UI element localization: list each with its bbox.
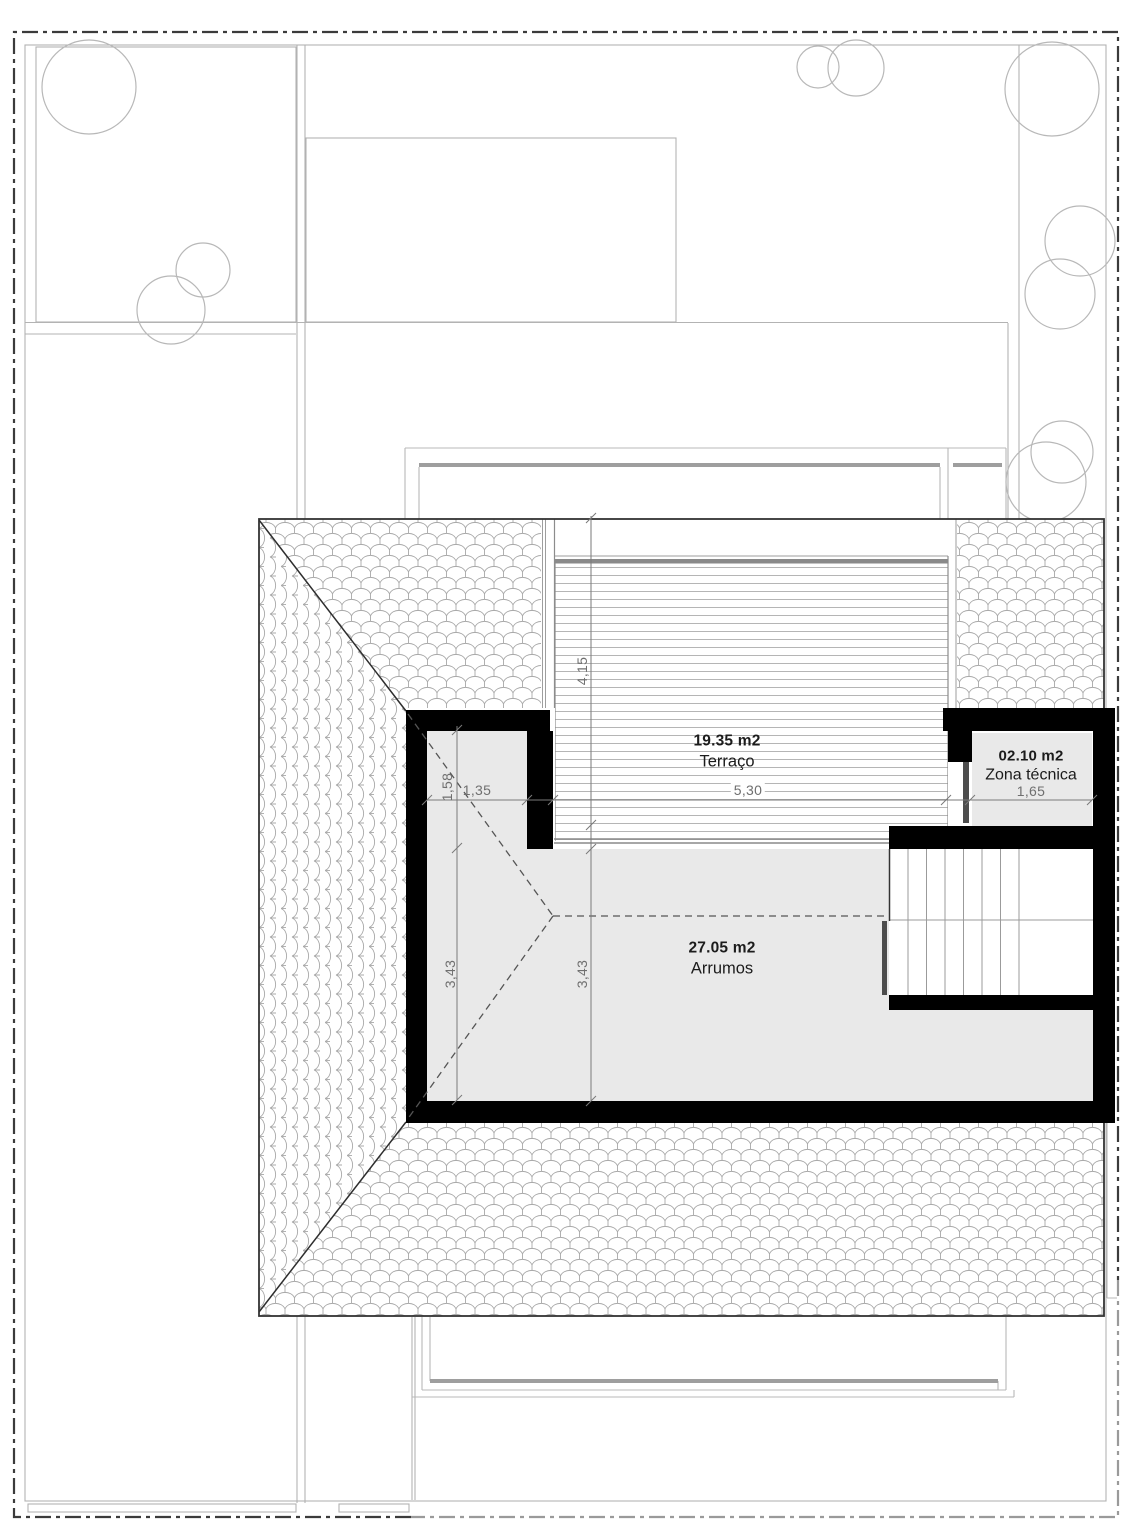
plan-linework <box>0 0 1125 1526</box>
dimension-terrace-width: 5,30 <box>731 782 765 798</box>
dimension-nook-width: 1,35 <box>463 782 491 798</box>
room-label-terraco: 19.35 m2 Terraço <box>693 733 760 772</box>
door-leaf-zona-tecnica <box>963 762 969 823</box>
site-plan: 19.35 m2 Terraço 02.10 m2 Zona técnica 2… <box>0 0 1125 1526</box>
room-area-value: 27.05 m2 <box>688 940 755 958</box>
dimension-zona-tecnica-width: 1,65 <box>1017 783 1045 799</box>
stairs <box>890 849 1094 995</box>
terrace-deck <box>541 519 957 848</box>
dimension-storage-depth-left: 3,43 <box>442 960 458 988</box>
dimension-terrace-depth: 4,15 <box>574 657 590 685</box>
dimension-nook-depth: 1,58 <box>439 773 455 801</box>
room-area-value: 02.10 m2 <box>985 748 1077 765</box>
room-area-value: 19.35 m2 <box>693 733 760 751</box>
room-name: Arrumos <box>688 960 755 979</box>
room-name: Terraço <box>693 753 760 772</box>
room-name: Zona técnica <box>985 767 1077 785</box>
room-label-zona-tecnica: 02.10 m2 Zona técnica <box>985 748 1077 785</box>
dimension-storage-depth-center: 3,43 <box>574 960 590 988</box>
tree-symbols <box>42 40 1115 522</box>
room-arrumos-fill <box>427 849 889 1101</box>
door-leaf-stairs <box>882 921 887 995</box>
room-label-arrumos: 27.05 m2 Arrumos <box>688 940 755 979</box>
